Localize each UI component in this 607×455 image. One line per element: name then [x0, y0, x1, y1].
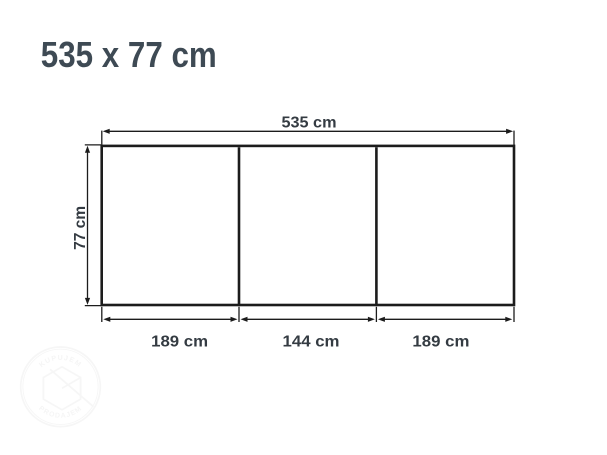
- svg-text:189 cm: 189 cm: [412, 334, 469, 351]
- svg-text:535 cm: 535 cm: [282, 114, 337, 131]
- svg-text:535 x 77 cm: 535 x 77 cm: [41, 34, 217, 75]
- svg-text:189 cm: 189 cm: [151, 334, 208, 351]
- svg-text:77 cm: 77 cm: [72, 206, 89, 250]
- svg-text:144 cm: 144 cm: [283, 334, 340, 351]
